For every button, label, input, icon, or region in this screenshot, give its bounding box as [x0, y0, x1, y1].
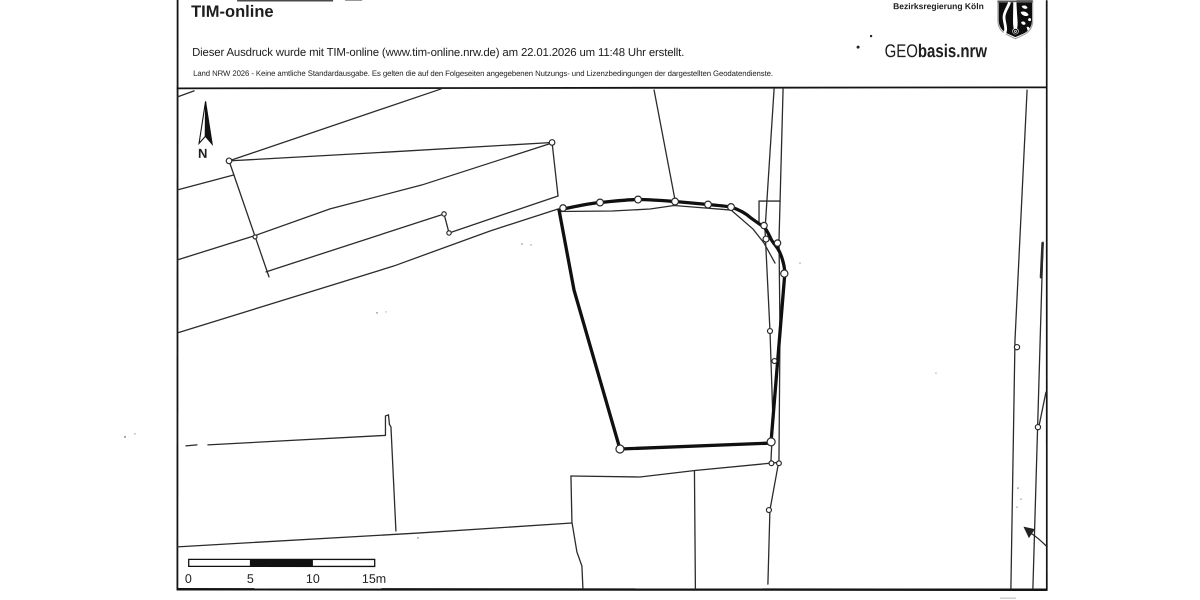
svg-text:10: 10 — [306, 572, 320, 586]
svg-text:N: N — [198, 146, 207, 161]
svg-text:Dieser Ausdruck wurde mit TIM-: Dieser Ausdruck wurde mit TIM-online (ww… — [192, 47, 684, 59]
svg-text:Bezirksregierung Köln: Bezirksregierung Köln — [893, 1, 984, 11]
svg-text:15m: 15m — [362, 572, 386, 586]
svg-text:GEObasis.nrw: GEObasis.nrw — [885, 40, 988, 61]
svg-text:0: 0 — [185, 572, 192, 586]
svg-text:Land NRW 2026 - Keine amtliche: Land NRW 2026 - Keine amtliche Standarda… — [193, 69, 773, 78]
svg-text:TIM-online: TIM-online — [191, 3, 273, 21]
svg-text:5: 5 — [247, 572, 254, 586]
